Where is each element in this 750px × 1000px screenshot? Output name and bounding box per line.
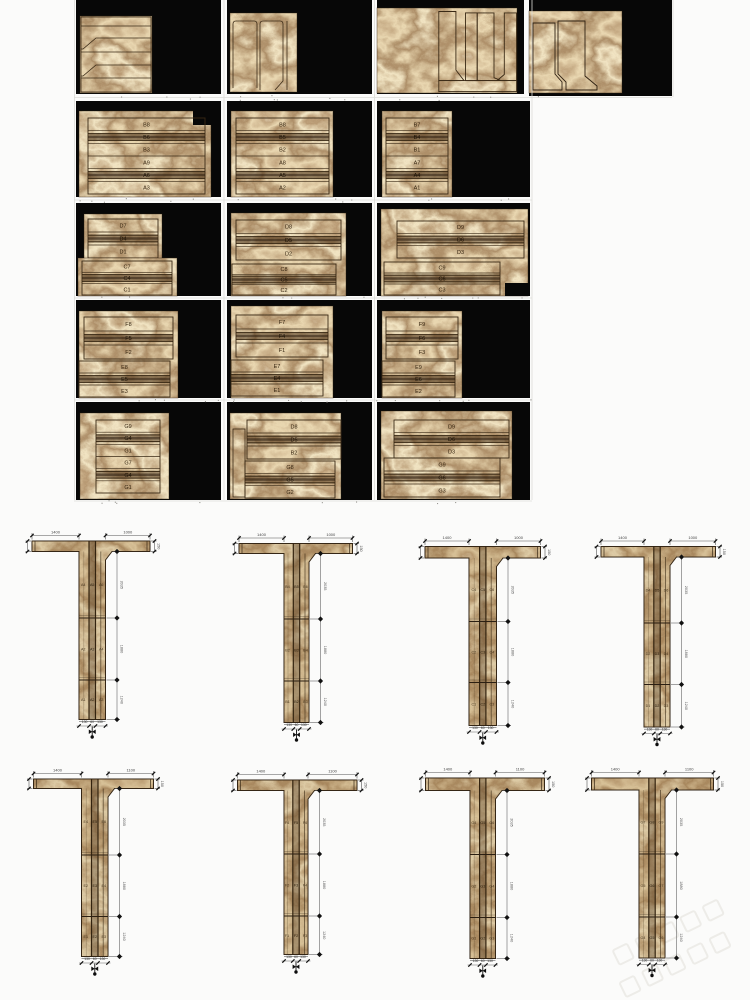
svg-text:G4: G4: [641, 936, 646, 940]
svg-text:A3: A3: [90, 648, 95, 652]
svg-text:F2: F2: [285, 884, 289, 888]
svg-text:C9: C9: [438, 266, 445, 272]
svg-text:1240: 1240: [322, 931, 326, 939]
svg-text:C2: C2: [280, 288, 287, 294]
svg-text:G6: G6: [438, 476, 445, 482]
svg-text:G7: G7: [659, 884, 664, 888]
svg-text:B6: B6: [143, 135, 150, 141]
svg-text:D1: D1: [646, 704, 651, 708]
svg-text:D6: D6: [448, 437, 455, 443]
svg-text:1240: 1240: [679, 933, 683, 941]
svg-text:D8: D8: [285, 225, 292, 231]
svg-text:C1: C1: [471, 703, 476, 707]
svg-text:A2: A2: [279, 186, 286, 192]
svg-text:130: 130: [286, 955, 292, 959]
svg-text:1400: 1400: [53, 768, 63, 773]
svg-text:150: 150: [547, 549, 551, 555]
svg-text:G3: G3: [480, 885, 485, 889]
svg-text:C4: C4: [489, 651, 494, 655]
svg-text:C3: C3: [438, 288, 445, 294]
svg-text:1000: 1000: [123, 530, 133, 535]
svg-text:2035: 2035: [120, 581, 124, 589]
svg-text:D3: D3: [448, 450, 455, 456]
svg-text:G2: G2: [480, 937, 485, 941]
svg-text:C1: C1: [123, 287, 130, 293]
svg-text:1880: 1880: [679, 881, 683, 889]
svg-text:130: 130: [301, 723, 307, 727]
svg-text:G5: G5: [650, 936, 655, 940]
svg-text:C5: C5: [480, 588, 485, 592]
svg-text:E1: E1: [274, 388, 281, 394]
svg-text:150: 150: [364, 782, 368, 788]
svg-text:E3: E3: [121, 389, 128, 395]
svg-text:E1: E1: [84, 935, 89, 939]
svg-text:130: 130: [487, 959, 493, 963]
svg-text:E3: E3: [93, 884, 98, 888]
svg-text:130: 130: [642, 958, 648, 962]
svg-text:G5: G5: [641, 884, 646, 888]
svg-text:B8: B8: [279, 122, 286, 128]
svg-text:G1: G1: [124, 485, 131, 491]
svg-text:D1: D1: [119, 250, 126, 256]
svg-text:130: 130: [82, 720, 88, 724]
svg-text:D5: D5: [655, 589, 660, 593]
svg-text:F1: F1: [279, 348, 285, 354]
svg-text:G4: G4: [471, 821, 476, 825]
svg-text:1240: 1240: [323, 698, 327, 706]
svg-text:130: 130: [647, 727, 653, 731]
svg-text:G9: G9: [124, 424, 131, 430]
svg-text:D2: D2: [285, 251, 292, 257]
svg-text:1400: 1400: [256, 769, 266, 774]
svg-text:D6: D6: [457, 238, 464, 244]
svg-text:A1: A1: [414, 186, 421, 192]
svg-text:1880: 1880: [323, 646, 327, 654]
svg-text:G7: G7: [124, 461, 131, 467]
svg-text:D4: D4: [119, 237, 126, 243]
svg-text:130: 130: [488, 726, 494, 730]
svg-text:C2: C2: [471, 651, 476, 655]
svg-text:A5: A5: [279, 173, 286, 179]
svg-text:A9: A9: [143, 160, 150, 166]
svg-text:G8: G8: [650, 821, 655, 825]
svg-text:2035: 2035: [511, 586, 515, 594]
svg-text:D7: D7: [119, 224, 126, 230]
svg-text:1880: 1880: [510, 882, 514, 890]
svg-text:60: 60: [90, 720, 94, 724]
svg-text:B4: B4: [303, 649, 308, 653]
svg-text:150: 150: [722, 549, 726, 555]
svg-text:B2: B2: [294, 700, 299, 704]
svg-text:A7: A7: [414, 160, 421, 166]
svg-text:G2: G2: [471, 885, 476, 889]
svg-text:1240: 1240: [510, 934, 514, 942]
svg-text:B1: B1: [285, 700, 290, 704]
svg-text:F3: F3: [294, 884, 298, 888]
svg-text:1400: 1400: [618, 535, 628, 540]
svg-text:G6: G6: [489, 821, 494, 825]
svg-text:A4: A4: [99, 648, 104, 652]
svg-text:1240: 1240: [122, 932, 126, 940]
svg-text:F4: F4: [285, 821, 289, 825]
svg-text:2035: 2035: [323, 582, 327, 590]
svg-text:A4: A4: [81, 583, 86, 587]
svg-text:60: 60: [93, 957, 97, 961]
svg-text:G5: G5: [480, 821, 485, 825]
svg-text:60: 60: [481, 959, 485, 963]
svg-text:F7: F7: [279, 320, 285, 326]
svg-text:F5: F5: [125, 336, 131, 342]
svg-text:60: 60: [295, 723, 299, 727]
svg-text:F9: F9: [419, 322, 425, 328]
svg-text:C6: C6: [489, 588, 494, 592]
svg-text:A2: A2: [81, 648, 86, 652]
svg-text:B3: B3: [294, 649, 299, 653]
svg-text:130: 130: [100, 957, 106, 961]
svg-text:F3: F3: [303, 934, 307, 938]
svg-text:C8: C8: [280, 267, 287, 273]
svg-text:G1: G1: [471, 937, 476, 941]
svg-text:E5: E5: [93, 820, 98, 824]
svg-text:D5: D5: [290, 438, 297, 444]
svg-text:2035: 2035: [679, 818, 683, 826]
svg-text:G8: G8: [286, 465, 293, 471]
svg-text:D4: D4: [646, 589, 651, 593]
svg-text:F6: F6: [303, 821, 307, 825]
svg-text:130: 130: [657, 958, 663, 962]
svg-text:130: 130: [300, 955, 306, 959]
svg-text:A6: A6: [99, 583, 104, 587]
svg-text:130: 130: [84, 957, 90, 961]
svg-text:G5: G5: [286, 478, 293, 484]
svg-text:130: 130: [472, 726, 478, 730]
svg-text:1880: 1880: [122, 882, 126, 890]
svg-text:60: 60: [655, 727, 659, 731]
svg-text:F2: F2: [125, 350, 131, 356]
svg-text:1100: 1100: [516, 767, 525, 772]
svg-text:A6: A6: [143, 173, 150, 179]
svg-text:1100: 1100: [126, 768, 135, 773]
svg-text:C4: C4: [123, 276, 130, 282]
svg-text:B3: B3: [143, 148, 150, 154]
svg-text:G1: G1: [124, 448, 131, 454]
svg-text:E4: E4: [102, 884, 107, 888]
svg-text:B3: B3: [303, 700, 308, 704]
svg-text:E2: E2: [93, 935, 98, 939]
svg-text:A5: A5: [90, 583, 95, 587]
svg-text:E6: E6: [102, 820, 107, 824]
svg-text:C4: C4: [471, 588, 476, 592]
svg-text:1100: 1100: [685, 767, 694, 772]
svg-text:C6: C6: [438, 277, 445, 283]
svg-text:A1: A1: [81, 698, 86, 702]
svg-text:A3: A3: [143, 186, 150, 192]
svg-text:C5: C5: [280, 278, 287, 284]
svg-text:2035: 2035: [122, 818, 126, 826]
svg-text:150: 150: [720, 781, 724, 787]
svg-text:60: 60: [294, 955, 298, 959]
svg-text:G3: G3: [489, 937, 494, 941]
svg-text:F6: F6: [419, 336, 425, 342]
svg-text:D3: D3: [457, 250, 464, 256]
svg-text:F4: F4: [279, 334, 285, 340]
svg-text:C2: C2: [480, 703, 485, 707]
svg-text:B2: B2: [279, 148, 286, 154]
svg-text:A3: A3: [99, 698, 104, 702]
svg-text:G4: G4: [489, 885, 494, 889]
svg-text:B4: B4: [285, 585, 290, 589]
svg-text:D4: D4: [664, 652, 669, 656]
svg-text:E7: E7: [274, 364, 281, 370]
svg-text:130: 130: [473, 959, 479, 963]
svg-text:G9: G9: [438, 463, 445, 469]
svg-text:C3: C3: [480, 651, 485, 655]
svg-text:130: 130: [286, 723, 292, 727]
svg-text:D2: D2: [655, 704, 660, 708]
svg-text:G4: G4: [124, 473, 131, 479]
svg-text:A8: A8: [279, 160, 286, 166]
svg-text:E3: E3: [102, 935, 107, 939]
svg-text:150: 150: [359, 545, 363, 551]
svg-text:1000: 1000: [688, 535, 698, 540]
svg-text:G3: G3: [438, 489, 445, 495]
svg-text:E5: E5: [121, 377, 128, 383]
svg-text:C7: C7: [123, 265, 130, 271]
svg-text:G4: G4: [124, 436, 131, 442]
svg-text:1240: 1240: [120, 696, 124, 704]
svg-text:B6: B6: [303, 585, 308, 589]
svg-text:G7: G7: [641, 821, 646, 825]
svg-text:B5: B5: [294, 585, 299, 589]
svg-text:1880: 1880: [684, 650, 688, 658]
svg-text:D5: D5: [285, 238, 292, 244]
svg-text:B2: B2: [285, 649, 290, 653]
svg-text:1400: 1400: [257, 532, 267, 537]
svg-text:1400: 1400: [443, 767, 453, 772]
svg-text:A2: A2: [90, 698, 95, 702]
svg-text:2035: 2035: [684, 586, 688, 594]
svg-text:E2: E2: [415, 389, 422, 395]
svg-text:G6: G6: [650, 884, 655, 888]
svg-text:1880: 1880: [120, 645, 124, 653]
svg-text:B1: B1: [414, 148, 421, 154]
svg-text:A4: A4: [414, 173, 421, 179]
svg-text:D2: D2: [646, 652, 651, 656]
svg-text:B4: B4: [414, 135, 421, 141]
svg-text:1400: 1400: [51, 530, 61, 535]
svg-text:G2: G2: [286, 490, 293, 496]
svg-text:1400: 1400: [611, 767, 621, 772]
svg-text:1000: 1000: [514, 535, 524, 540]
svg-text:2035: 2035: [322, 818, 326, 826]
svg-text:130: 130: [97, 720, 103, 724]
svg-text:G6: G6: [659, 936, 664, 940]
svg-text:E8: E8: [121, 365, 128, 371]
svg-text:60: 60: [481, 726, 485, 730]
svg-text:130: 130: [662, 727, 668, 731]
svg-text:D9: D9: [457, 225, 464, 231]
svg-text:B5: B5: [279, 135, 286, 141]
svg-text:1000: 1000: [326, 532, 336, 537]
svg-text:F4: F4: [303, 884, 307, 888]
svg-text:D3: D3: [655, 652, 660, 656]
svg-text:1400: 1400: [443, 535, 453, 540]
svg-text:E9: E9: [415, 365, 422, 371]
svg-text:150: 150: [551, 781, 555, 787]
svg-text:E2: E2: [84, 884, 89, 888]
svg-text:C3: C3: [489, 703, 494, 707]
svg-text:E4: E4: [84, 820, 89, 824]
svg-text:B2: B2: [291, 451, 298, 457]
svg-text:F8: F8: [125, 322, 131, 328]
svg-text:150: 150: [157, 543, 161, 549]
svg-text:1880: 1880: [511, 648, 515, 656]
svg-text:E4: E4: [274, 376, 281, 382]
svg-text:F3: F3: [419, 350, 425, 356]
svg-text:1100: 1100: [328, 769, 337, 774]
svg-text:D8: D8: [290, 425, 297, 431]
svg-text:F1: F1: [285, 934, 289, 938]
svg-text:1240: 1240: [511, 700, 515, 708]
svg-text:1880: 1880: [322, 881, 326, 889]
svg-text:G9: G9: [659, 821, 664, 825]
svg-text:E6: E6: [415, 377, 422, 383]
svg-text:B7: B7: [414, 122, 421, 128]
svg-text:B8: B8: [143, 122, 150, 128]
svg-text:D3: D3: [664, 704, 669, 708]
svg-text:D9: D9: [448, 424, 455, 430]
svg-text:D6: D6: [664, 589, 669, 593]
svg-text:150: 150: [160, 781, 164, 787]
svg-text:2035: 2035: [510, 818, 514, 826]
svg-text:F2: F2: [294, 934, 298, 938]
svg-text:1240: 1240: [684, 702, 688, 710]
svg-text:60: 60: [650, 958, 654, 962]
svg-text:F5: F5: [294, 821, 298, 825]
